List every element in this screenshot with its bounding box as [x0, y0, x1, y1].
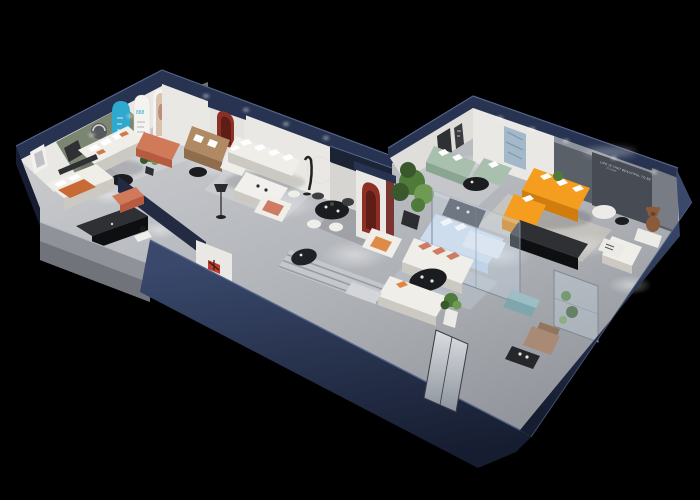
spotlight-glow	[529, 127, 535, 131]
arch-panel-numbers: 888	[136, 110, 145, 116]
table-decor	[518, 352, 521, 355]
sofa-plant	[553, 171, 563, 181]
table-decor	[430, 279, 433, 282]
console-decor	[111, 223, 113, 225]
table-decor	[525, 355, 528, 358]
spotlight-glow	[243, 108, 249, 112]
tall-plant-foliage	[400, 162, 416, 178]
spotlight-glow	[611, 156, 617, 160]
table-setting	[325, 206, 328, 209]
black-vase	[140, 226, 146, 232]
spotlight-glow	[127, 114, 133, 118]
black-round-table	[463, 177, 489, 191]
table-setting	[337, 210, 340, 213]
ottoman-decor	[300, 254, 303, 257]
table-decor	[264, 188, 267, 191]
dark-dining-chair	[312, 193, 324, 200]
spotlight-glow	[563, 139, 569, 143]
dining-chair	[307, 220, 321, 229]
spotlight-glow	[283, 122, 289, 126]
spotlight-glow	[89, 133, 95, 137]
spotlight-glow	[203, 94, 209, 98]
pillar-arch-inner	[366, 191, 376, 232]
dining-chair	[288, 191, 300, 198]
cove-glow	[584, 147, 636, 157]
floor-lamp-base	[216, 215, 226, 219]
black-side-table	[189, 167, 207, 177]
table-decor	[420, 275, 423, 278]
black-tray-table	[615, 217, 629, 225]
spotlight-glow	[497, 116, 503, 120]
dark-dining-chair	[342, 198, 354, 206]
table-vase	[330, 202, 334, 206]
pedestal-plant	[453, 301, 462, 310]
spotlight-glow	[323, 136, 329, 140]
bear-figure-muzzle	[651, 212, 656, 216]
dining-chair	[329, 223, 343, 232]
screenshot-root: 888	[0, 0, 700, 500]
spotlight-glow	[651, 170, 657, 174]
tall-plant-foliage	[391, 183, 409, 201]
white-coffee-table	[592, 205, 616, 219]
tall-plant-foliage	[411, 198, 425, 212]
isometric-showroom-render: 888	[0, 0, 700, 500]
table-decor	[471, 181, 474, 184]
bear-figure-body	[646, 216, 660, 232]
table-decor	[256, 184, 259, 187]
pedestal-plant	[441, 301, 450, 310]
mannequin-base	[303, 193, 311, 196]
